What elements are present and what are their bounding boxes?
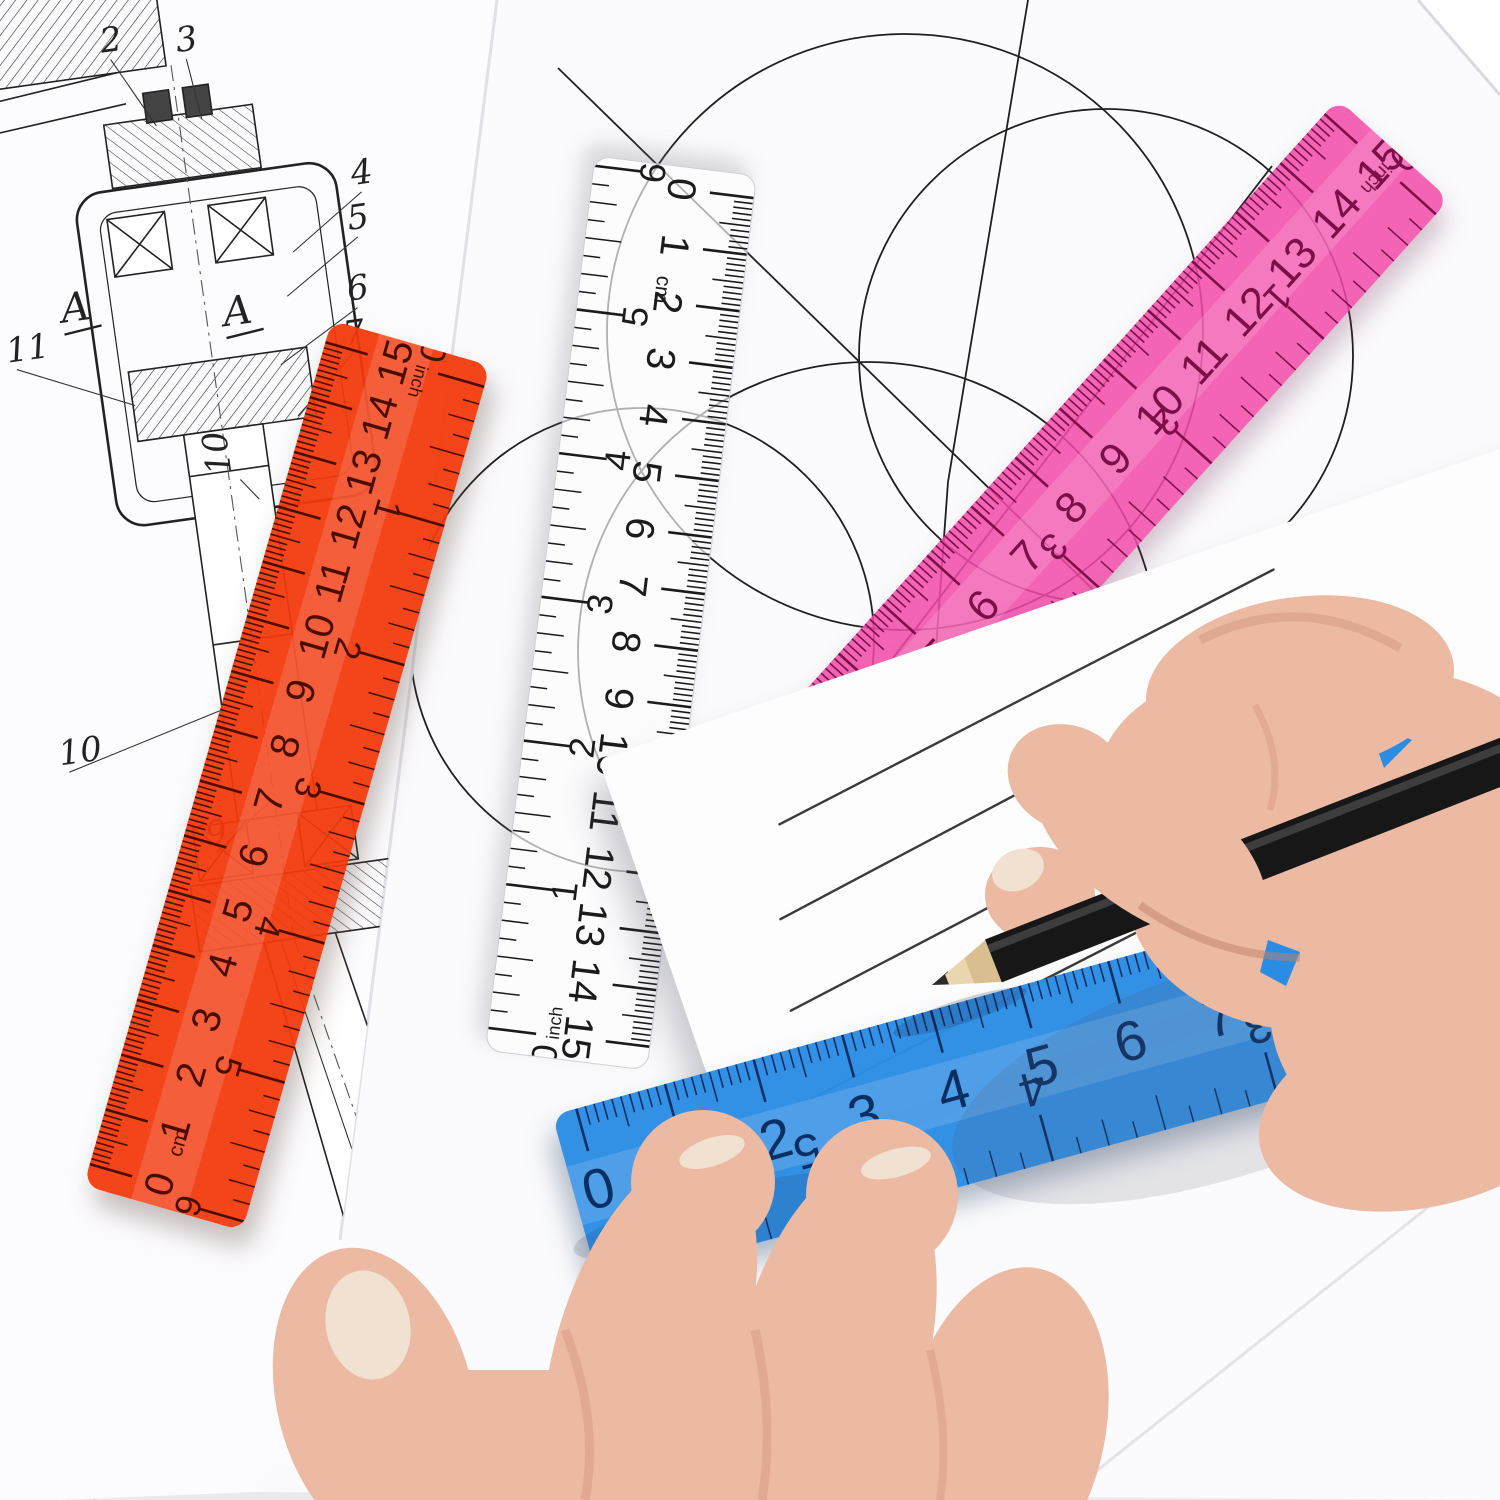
hands-and-pencil (0, 0, 1500, 1500)
photo-scene: 2345679101011AA 0cm123456789101112131415… (0, 0, 1500, 1500)
